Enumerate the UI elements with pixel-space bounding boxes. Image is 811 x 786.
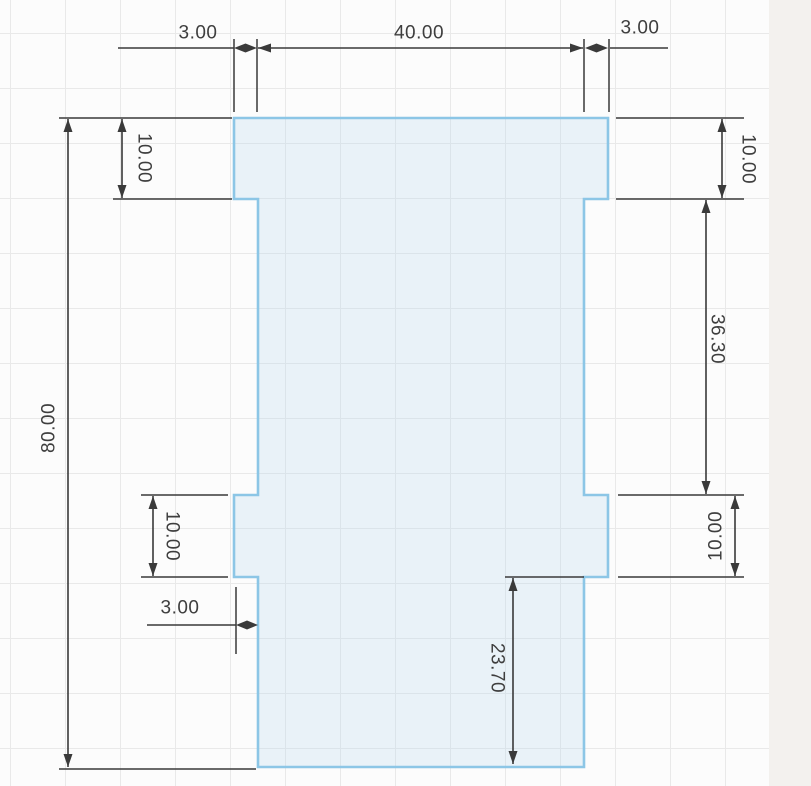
arrowhead-icon bbox=[718, 119, 727, 132]
dimension-label[interactable]: 23.70 bbox=[487, 643, 508, 693]
arrowhead-icon bbox=[731, 563, 740, 576]
dimension-label[interactable]: 10.00 bbox=[134, 133, 155, 183]
arrowhead-icon bbox=[718, 185, 727, 198]
arrowhead-icon bbox=[258, 44, 271, 53]
dimension-label[interactable]: 36.30 bbox=[707, 314, 728, 364]
dimension-label[interactable]: 10.00 bbox=[738, 134, 759, 184]
dimension-top-left-3[interactable]: 3.00 bbox=[118, 23, 257, 113]
arrowhead-icon bbox=[149, 496, 158, 509]
double-arrowhead-icon bbox=[236, 621, 258, 630]
cad-canvas[interactable]: 3.0040.003.0080.0010.0010.0036.3010.0010… bbox=[0, 0, 811, 786]
dimension-label[interactable]: 10.00 bbox=[162, 511, 183, 561]
sketch-drawing: 3.0040.003.0080.0010.0010.0036.3010.0010… bbox=[0, 0, 811, 786]
sketch-profile[interactable] bbox=[234, 118, 608, 767]
dimension-label[interactable]: 10.00 bbox=[706, 511, 727, 561]
arrowhead-icon bbox=[570, 44, 583, 53]
double-arrowhead-icon bbox=[585, 44, 608, 53]
dimension-bottom-left-3[interactable]: 3.00 bbox=[147, 587, 258, 654]
dimension-label[interactable]: 3.00 bbox=[179, 23, 218, 44]
dimension-left-80[interactable]: 80.00 bbox=[39, 118, 257, 769]
dimension-top-right-3[interactable]: 3.00 bbox=[585, 18, 668, 53]
dimension-label[interactable]: 3.00 bbox=[161, 598, 200, 619]
arrowhead-icon bbox=[64, 119, 73, 132]
dimension-top-40[interactable]: 40.00 bbox=[258, 23, 609, 113]
arrowhead-icon bbox=[702, 481, 711, 494]
dimension-top-left-10[interactable]: 10.00 bbox=[113, 119, 232, 199]
arrowhead-icon bbox=[118, 185, 127, 198]
dimension-top-right-10[interactable]: 10.00 bbox=[616, 118, 759, 199]
dimension-mid-right-10[interactable]: 10.00 bbox=[618, 496, 744, 577]
dimension-label[interactable]: 3.00 bbox=[621, 18, 660, 39]
arrowhead-icon bbox=[118, 119, 127, 132]
dimension-mid-left-10[interactable]: 10.00 bbox=[141, 495, 228, 577]
dimension-label[interactable]: 80.00 bbox=[39, 403, 60, 453]
dimension-label[interactable]: 40.00 bbox=[394, 23, 444, 44]
arrowhead-icon bbox=[702, 200, 711, 213]
arrowhead-icon bbox=[149, 563, 158, 576]
dimension-right-36-30[interactable]: 36.30 bbox=[618, 200, 744, 495]
arrowhead-icon bbox=[64, 754, 73, 767]
double-arrowhead-icon bbox=[234, 44, 257, 53]
arrowhead-icon bbox=[731, 496, 740, 509]
